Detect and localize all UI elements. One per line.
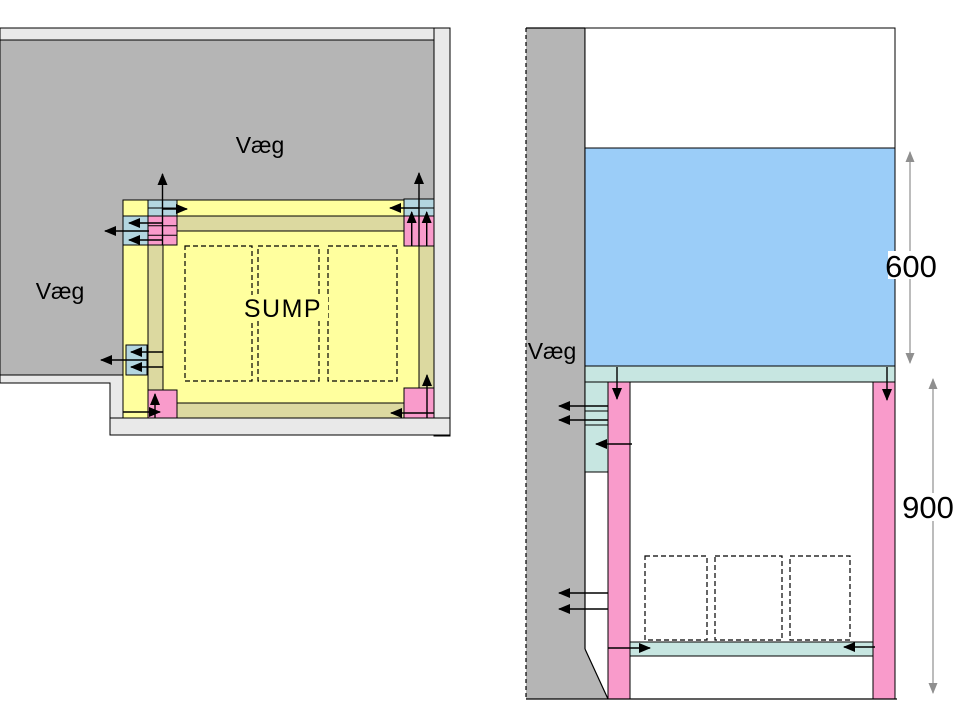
shelf-compartment-1 <box>645 556 707 640</box>
tank-water <box>585 148 895 366</box>
wall-label-top: Væg <box>236 132 285 158</box>
tank-bottom-board <box>585 366 895 382</box>
plan-outline-bottom-strip <box>110 418 450 435</box>
shelf-compartment-3 <box>790 556 850 640</box>
dimension-900-label: 900 <box>902 490 954 525</box>
plan-outline-left-step <box>0 375 123 418</box>
plan-view: Væg Væg SUMP <box>0 28 450 436</box>
frame-rail-top <box>148 216 434 231</box>
frame-rail-bottom <box>148 403 434 418</box>
stand-leg-right <box>873 382 895 699</box>
shelf-compartment-2 <box>715 556 782 640</box>
plan-outline-right-strip <box>434 28 450 436</box>
wall-label-side: Væg <box>528 338 577 364</box>
stand-shelf <box>630 642 873 656</box>
frame-rail-left <box>148 216 163 418</box>
plan-outline-top-strip <box>0 28 434 40</box>
diagram-canvas: Væg Væg SUMP <box>0 0 960 720</box>
leg-block-bottom-left <box>148 390 177 418</box>
shelf-compartments <box>645 556 850 640</box>
dimension-600-label: 600 <box>885 249 937 284</box>
wall-label-left: Væg <box>36 278 85 304</box>
sump-label: SUMP <box>244 295 322 323</box>
stand-leg-left <box>608 382 630 699</box>
side-view: 600 900 Væg <box>526 28 954 699</box>
wall-bracket <box>585 382 608 472</box>
